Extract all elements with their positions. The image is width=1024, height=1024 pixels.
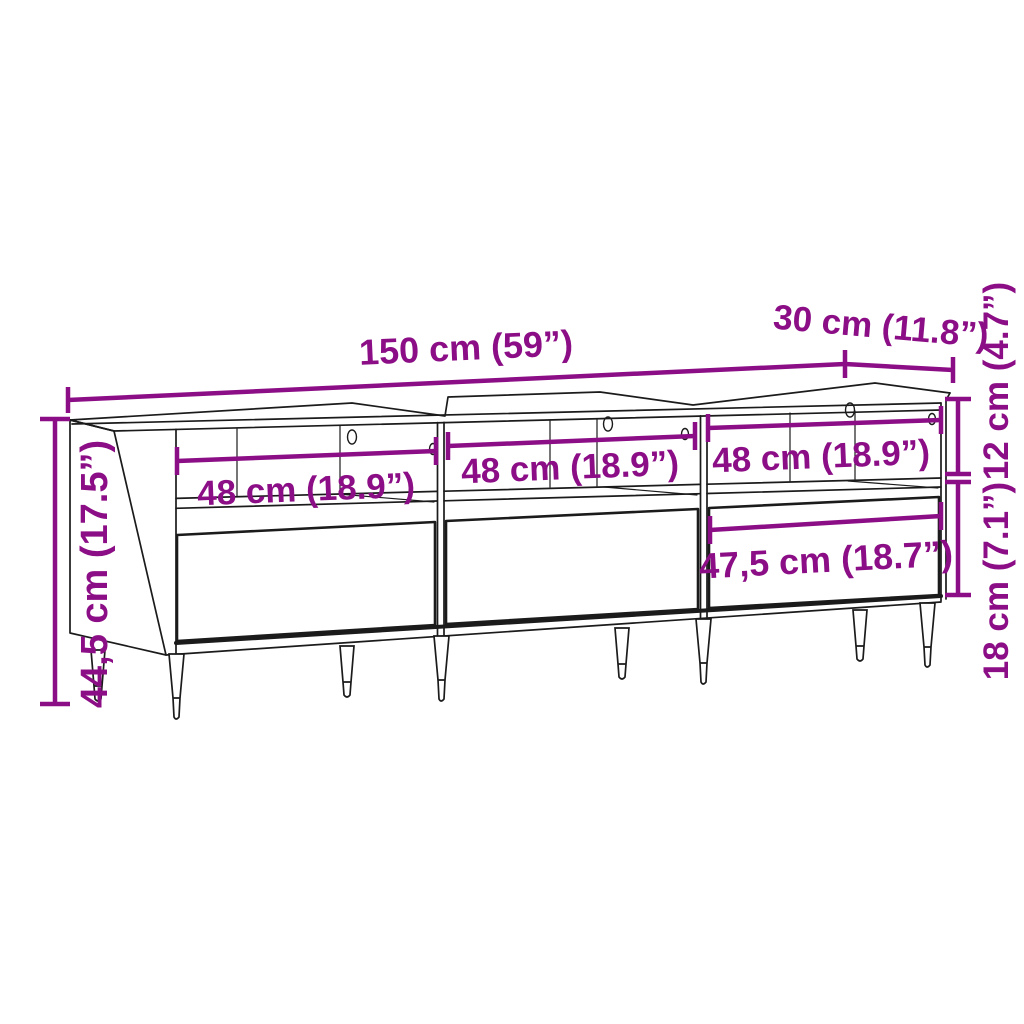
overall-width-dimension-line: [68, 364, 845, 400]
leg: [696, 619, 711, 684]
tv-cabinet-dimension-drawing: 150 cm (59”) 30 cm (11.8”) 12 cm (4.7”) …: [0, 0, 1024, 1024]
shelf-front-bottom-edge: [707, 487, 941, 494]
overall-depth-dimension-line: [845, 364, 953, 370]
leg: [853, 610, 867, 661]
drawer-middle: [446, 509, 698, 624]
overall-height-label: 44,5 cm (17.5”): [74, 440, 116, 708]
divider-left: [438, 422, 445, 636]
compartment-width-left-line: [177, 451, 436, 461]
shelf-surface-edge: [604, 487, 697, 495]
compartment-width-middle-label: 48 cm (18.9”): [460, 444, 679, 492]
compartment-width-left-label: 48 cm (18.9”): [196, 466, 415, 514]
leg: [615, 628, 629, 679]
overall-width-label: 150 cm (59”): [358, 322, 574, 373]
compartment-width-right-label: 48 cm (18.9”): [711, 433, 930, 481]
drawer-front: [446, 509, 698, 624]
cabinet-top-back-edge: [70, 383, 950, 420]
leg: [169, 654, 184, 719]
dimension-labels: 150 cm (59”) 30 cm (11.8”) 12 cm (4.7”) …: [74, 282, 1016, 708]
leg: [920, 603, 935, 667]
cable-hole: [348, 430, 357, 444]
compartment-width-right-line: [708, 420, 941, 428]
compartment-height-label: 12 cm (4.7”): [977, 282, 1016, 480]
shelf-front-bottom-edge: [444, 494, 700, 501]
drawer-front: [177, 522, 435, 641]
leg: [340, 646, 354, 697]
drawer-height-label: 18 cm (7.1”): [977, 482, 1016, 680]
divider-right: [701, 416, 708, 619]
overall-depth-label: 30 cm (11.8”): [772, 298, 991, 356]
product-dimension-diagram: 150 cm (59”) 30 cm (11.8”) 12 cm (4.7”) …: [0, 0, 1024, 1024]
drawer-left: [177, 522, 435, 641]
shelf-surface-edge: [848, 481, 938, 488]
leg: [434, 636, 449, 701]
